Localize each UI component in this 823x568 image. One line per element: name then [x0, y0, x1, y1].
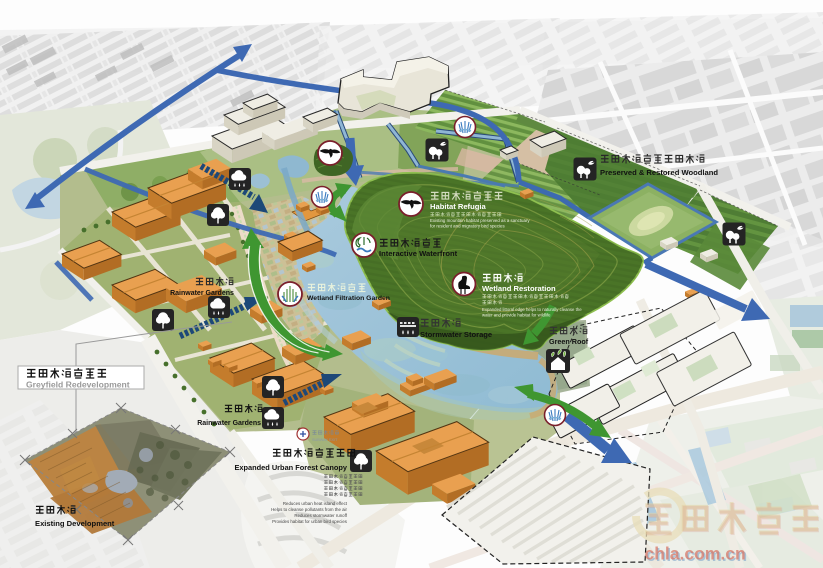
svg-text:Rainwater Gardens: Rainwater Gardens — [170, 290, 234, 297]
svg-text:Interactive Waterfront: Interactive Waterfront — [379, 249, 458, 258]
svg-text:Existing mountain habitat pres: Existing mountain habitat preserved as a… — [430, 218, 530, 223]
svg-text:Expanded Urban Forest Canopy: Expanded Urban Forest Canopy — [234, 463, 347, 472]
svg-text:Expanded littoral edge helps t: Expanded littoral edge helps to naturall… — [482, 307, 582, 312]
svg-text:Helps to cleanse pollutants fr: Helps to cleanse pollutants from the air — [271, 507, 347, 512]
svg-text:SUBWAY EXIT: SUBWAY EXIT — [312, 438, 338, 442]
svg-text:Stormwater Storage: Stormwater Storage — [420, 330, 492, 339]
svg-text:Preserved & Restored Woodland: Preserved & Restored Woodland — [600, 168, 718, 177]
svg-text:water and provide habitat for: water and provide habitat for wildlife — [482, 313, 551, 318]
svg-text:Greyfield Redevelopment: Greyfield Redevelopment — [26, 380, 130, 390]
svg-text:Rainwater Gardens: Rainwater Gardens — [197, 420, 261, 427]
svg-text:Wetland Filtration Garden: Wetland Filtration Garden — [307, 295, 390, 302]
svg-text:Habitat Refugia: Habitat Refugia — [430, 202, 486, 211]
svg-text:Existing Development: Existing Development — [35, 519, 115, 528]
svg-text:Reduces stormwater runoff: Reduces stormwater runoff — [294, 513, 347, 518]
svg-text:Wetland Restoration: Wetland Restoration — [482, 284, 556, 293]
svg-text:chla.com.cn: chla.com.cn — [645, 544, 746, 564]
svg-text:Reduces urban heat island effe: Reduces urban heat island effect — [283, 501, 348, 506]
svg-text:for resident and migratory bir: for resident and migratory bird species — [430, 224, 505, 229]
svg-text:Green Roof: Green Roof — [549, 337, 589, 346]
svg-text:Provides habitat for urban bir: Provides habitat for urban bird species — [272, 519, 348, 524]
